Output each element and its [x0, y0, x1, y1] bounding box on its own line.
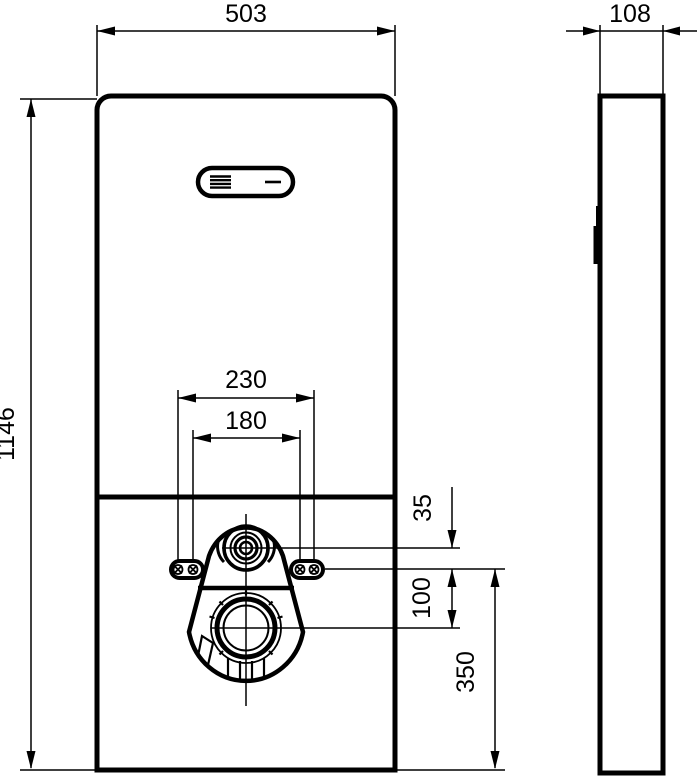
- technical-drawing: 503 1146 108 230 180: [0, 0, 699, 778]
- dimension-label-front-height: 1146: [0, 407, 20, 461]
- dimension-fixing-height: 350: [452, 569, 500, 769]
- dimension-label-side-depth: 108: [609, 0, 651, 28]
- drawing-canvas: 503 1146 108 230 180: [0, 0, 699, 778]
- dimension-label-fixing-height: 350: [452, 651, 480, 693]
- fixing-slot-left: [171, 561, 203, 578]
- fixing-slot-right: [291, 561, 323, 578]
- dimension-front-width: 503: [97, 0, 395, 96]
- side-view: [594, 96, 664, 773]
- dimension-label-fixing-to-outlet: 100: [408, 577, 436, 619]
- dimension-label-fixing-inner: 180: [225, 407, 267, 435]
- dimension-label-fixing-outer: 230: [225, 366, 267, 394]
- module-side-outline: [600, 96, 663, 773]
- dimension-side-depth: 108: [566, 0, 697, 94]
- dimension-front-height: 1146: [0, 99, 97, 769]
- full-flush-button-icon: [210, 177, 231, 188]
- dimension-inlet-to-fixing: 35: [409, 487, 457, 548]
- dimension-label-front-width: 503: [225, 0, 267, 28]
- flush-plate: [198, 168, 293, 196]
- dimension-label-inlet-to-fixing: 35: [409, 494, 437, 522]
- side-flush-plate-profile: [594, 206, 600, 264]
- dimension-fixing-to-outlet: 100: [408, 569, 457, 628]
